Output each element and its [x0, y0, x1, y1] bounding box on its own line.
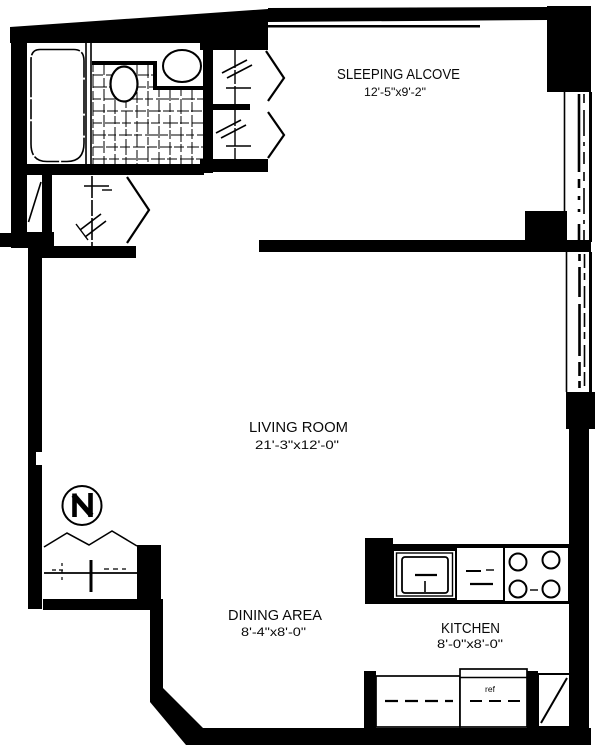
svg-text:DINING AREA: DINING AREA [228, 607, 322, 624]
svg-text:21'-3"x12'-0": 21'-3"x12'-0" [255, 438, 339, 452]
svg-text:LIVING ROOM: LIVING ROOM [249, 419, 348, 436]
svg-text:SLEEPING ALCOVE: SLEEPING ALCOVE [337, 66, 460, 83]
svg-text:12'-5"x9'-2": 12'-5"x9'-2" [364, 85, 426, 99]
svg-text:8'-0"x8'-0": 8'-0"x8'-0" [437, 637, 503, 651]
svg-text:8'-4"x8'-0": 8'-4"x8'-0" [241, 625, 306, 639]
svg-text:KITCHEN: KITCHEN [441, 620, 500, 637]
svg-text:ref: ref [485, 684, 496, 694]
